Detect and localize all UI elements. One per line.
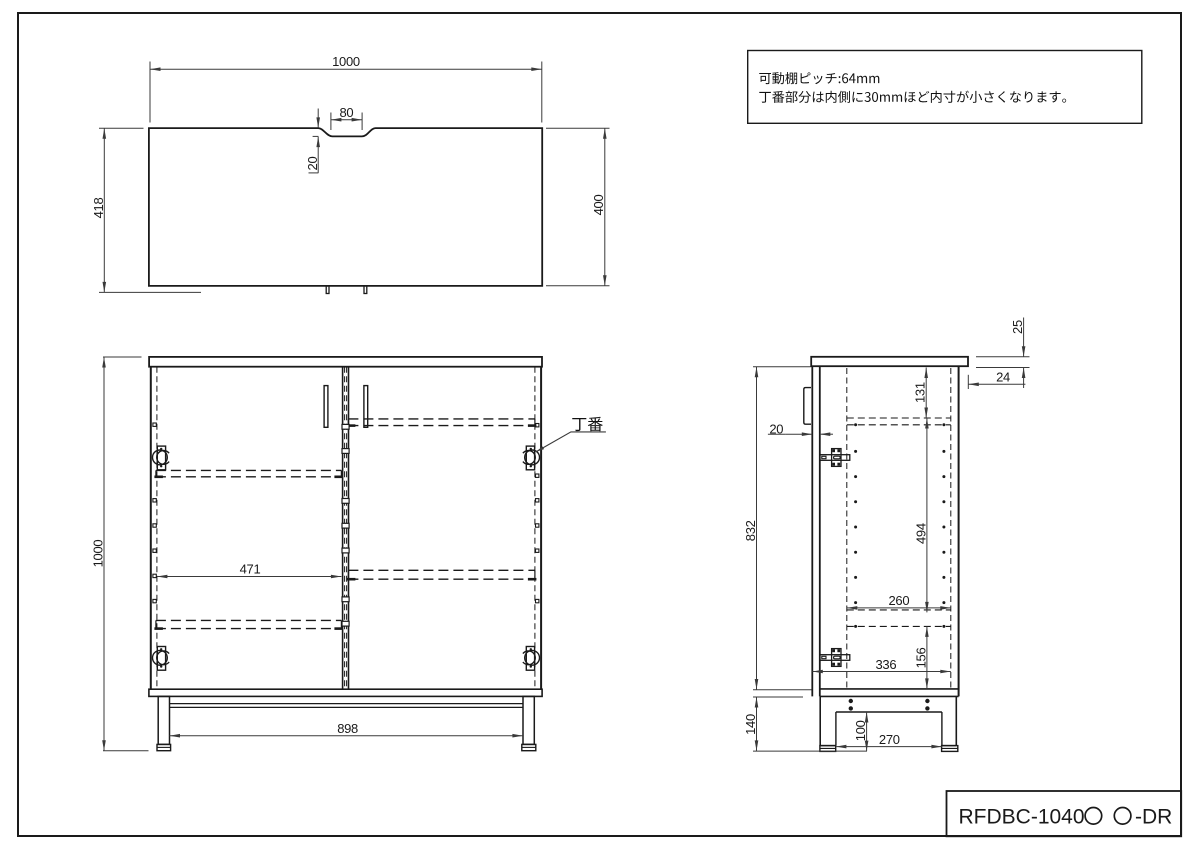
svg-text:1000: 1000	[91, 540, 106, 568]
svg-text:80: 80	[339, 105, 353, 120]
svg-text:471: 471	[240, 562, 261, 577]
svg-text:156: 156	[913, 648, 928, 669]
svg-text:140: 140	[743, 714, 758, 735]
svg-text:336: 336	[876, 657, 897, 672]
svg-text:-DR: -DR	[1135, 806, 1172, 829]
svg-text:RFDBC-1040: RFDBC-1040	[959, 806, 1085, 829]
svg-text:1000: 1000	[332, 54, 360, 69]
svg-text:24: 24	[996, 370, 1010, 385]
svg-text:898: 898	[337, 721, 358, 736]
svg-text:260: 260	[889, 593, 910, 608]
svg-text:131: 131	[913, 382, 928, 403]
svg-text:20: 20	[305, 157, 320, 171]
svg-text:400: 400	[591, 195, 606, 216]
svg-text:25: 25	[1010, 320, 1025, 334]
svg-text:832: 832	[743, 520, 758, 541]
svg-text:494: 494	[913, 523, 928, 544]
svg-text:270: 270	[879, 732, 900, 747]
svg-text:418: 418	[91, 198, 106, 219]
svg-text:100: 100	[853, 720, 868, 741]
